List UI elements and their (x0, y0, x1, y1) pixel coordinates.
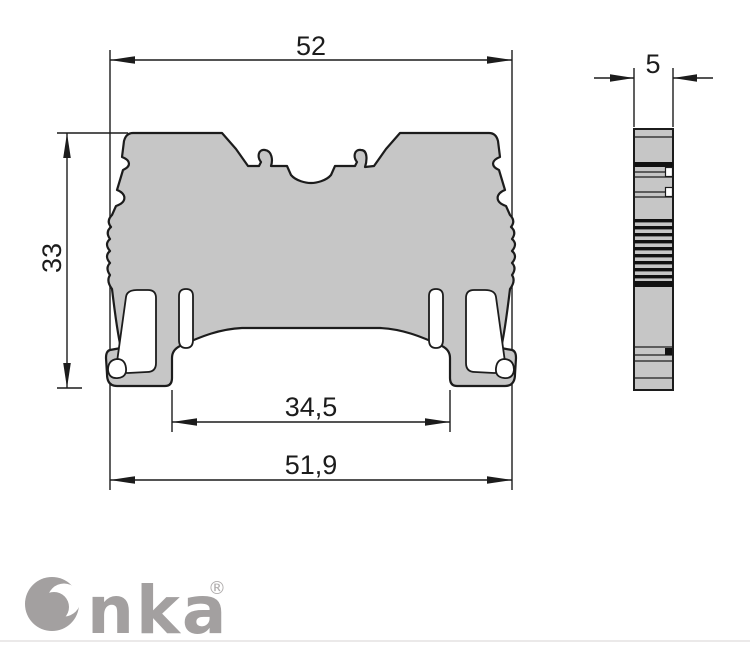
logo-o-bite-gray (39, 592, 69, 622)
side-view-black-band (634, 162, 673, 167)
technical-drawing: 52 33 34,5 51,9 5 nka ® (0, 0, 750, 645)
arrow-5-right (673, 74, 697, 82)
brand-logo: nka ® (25, 572, 228, 645)
arrow-519-right (487, 476, 512, 484)
arrow-519-left (110, 476, 135, 484)
arrow-33-down (63, 363, 71, 388)
side-view (634, 129, 673, 390)
arrow-33-up (63, 133, 71, 158)
terminal-body-outline (106, 133, 516, 386)
left-inner-slot (179, 289, 193, 348)
registered-trademark: ® (208, 578, 226, 599)
front-view (106, 133, 516, 386)
drawing-canvas: 52 33 34,5 51,9 5 nka ® (0, 0, 750, 645)
arrow-5-left (610, 74, 634, 82)
label-dim-519: 51,9 (285, 450, 338, 480)
side-view-latch-square (665, 348, 672, 355)
label-dim-5: 5 (645, 49, 660, 79)
side-view-tab-notch-1 (666, 168, 673, 177)
arrow-52-left (110, 56, 135, 64)
right-inner-slot (429, 289, 443, 348)
label-dim-52: 52 (296, 31, 326, 61)
arrow-345-left (172, 418, 197, 426)
label-dim-345: 34,5 (285, 392, 338, 422)
label-dim-33: 33 (37, 243, 67, 273)
arrow-52-right (487, 56, 512, 64)
arrow-345-right (425, 418, 450, 426)
left-rail-hook-cut (108, 359, 126, 378)
right-rail-hook-cut (496, 359, 514, 378)
bottom-divider (0, 640, 750, 642)
side-view-tab-notch-2 (666, 188, 673, 197)
